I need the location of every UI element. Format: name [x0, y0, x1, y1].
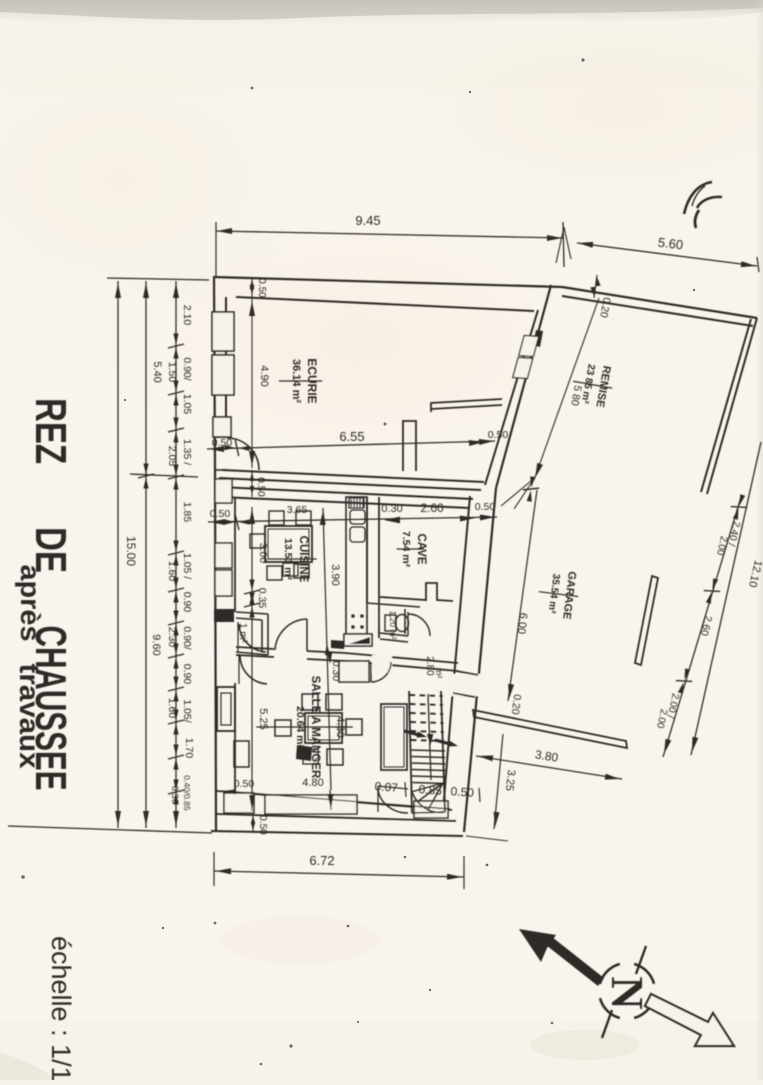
svg-text:0.50: 0.50	[488, 429, 509, 441]
svg-text:6.72: 6.72	[309, 853, 334, 868]
svg-text:0.90/: 0.90/	[181, 626, 193, 649]
svg-text:0.50: 0.50	[475, 501, 496, 513]
svg-text:0.90: 0.90	[181, 592, 193, 613]
svg-text:0.90: 0.90	[181, 664, 193, 685]
svg-text:0.30: 0.30	[169, 786, 180, 805]
svg-text:6.55: 6.55	[339, 429, 364, 444]
svg-text:après: après	[15, 565, 46, 642]
svg-text:1 m²: 1 m²	[237, 623, 248, 644]
svg-text:REZ: REZ	[26, 398, 75, 464]
svg-text:1.85: 1.85	[181, 502, 193, 523]
svg-text:2.60: 2.60	[420, 501, 444, 515]
svg-text:5.60: 5.60	[657, 235, 684, 253]
svg-text:0.20: 0.20	[509, 693, 523, 715]
svg-text:4.80: 4.80	[302, 777, 323, 789]
svg-text:0.50: 0.50	[256, 278, 267, 298]
svg-text:0.85: 0.85	[418, 782, 443, 798]
svg-text:0.50: 0.50	[257, 815, 268, 835]
svg-text:3.00: 3.00	[257, 543, 269, 564]
svg-text:1.70: 1.70	[183, 738, 195, 759]
svg-text:2.10: 2.10	[181, 305, 193, 326]
svg-text:0.30: 0.30	[381, 503, 402, 515]
svg-text:0.50: 0.50	[210, 508, 231, 520]
svg-text:4.90: 4.90	[258, 365, 270, 386]
svg-text:1.50: 1.50	[166, 362, 178, 383]
svg-text:1.05/: 1.05/	[181, 699, 193, 722]
svg-text:3.25: 3.25	[503, 769, 517, 792]
svg-text:1.35 /: 1.35 /	[181, 439, 193, 465]
svg-text:5.40: 5.40	[151, 361, 163, 382]
svg-text:1.60: 1.60	[166, 698, 178, 719]
svg-text:1.05: 1.05	[181, 394, 193, 415]
svg-text:échelle : 1/1: échelle : 1/1	[46, 936, 76, 1080]
svg-text:2.05: 2.05	[166, 446, 178, 467]
svg-text:1.60: 1.60	[166, 561, 178, 582]
svg-text:0.07: 0.07	[374, 779, 399, 795]
svg-text:2.30: 2.30	[166, 627, 178, 648]
svg-text:0.30: 0.30	[330, 661, 342, 682]
svg-text:9.45: 9.45	[355, 213, 380, 228]
svg-text:travaux: travaux	[14, 664, 45, 769]
svg-text:0.50: 0.50	[234, 778, 255, 790]
svg-text:0.40/0.85: 0.40/0.85	[182, 775, 192, 811]
svg-text:m²: m²	[434, 668, 444, 679]
svg-text:1,20 m²: 1,20 m²	[388, 611, 398, 640]
svg-text:3.90: 3.90	[329, 564, 341, 585]
svg-text:0.90/: 0.90/	[181, 357, 193, 380]
svg-text:2.80: 2.80	[424, 656, 435, 676]
svg-text:0.50: 0.50	[255, 477, 266, 497]
svg-text:0.35: 0.35	[256, 588, 268, 609]
svg-text:1.05 /: 1.05 /	[181, 553, 193, 579]
svg-text:9.60: 9.60	[150, 634, 162, 655]
svg-text:15.00: 15.00	[124, 536, 138, 566]
svg-text:3.65: 3.65	[287, 504, 308, 516]
svg-text:0.50: 0.50	[212, 437, 233, 449]
svg-text:0.50: 0.50	[450, 784, 475, 800]
